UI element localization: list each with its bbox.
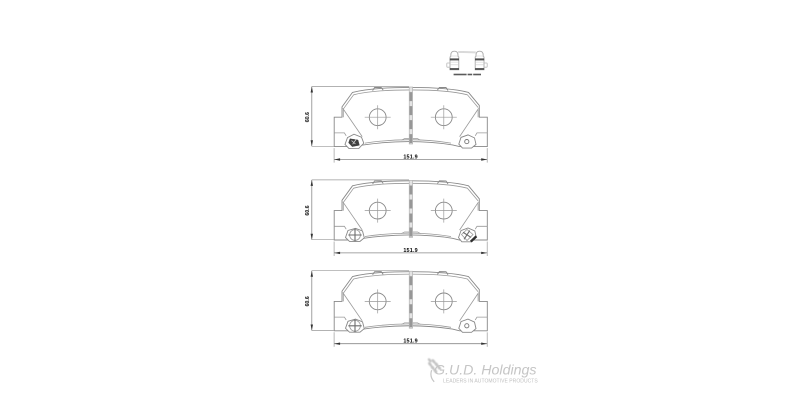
svg-text:LEADERS IN AUTOMOTIVE PRODUCTS: LEADERS IN AUTOMOTIVE PRODUCTS [443, 379, 538, 385]
svg-text:G.U.D. Holdings: G.U.D. Holdings [434, 363, 537, 379]
